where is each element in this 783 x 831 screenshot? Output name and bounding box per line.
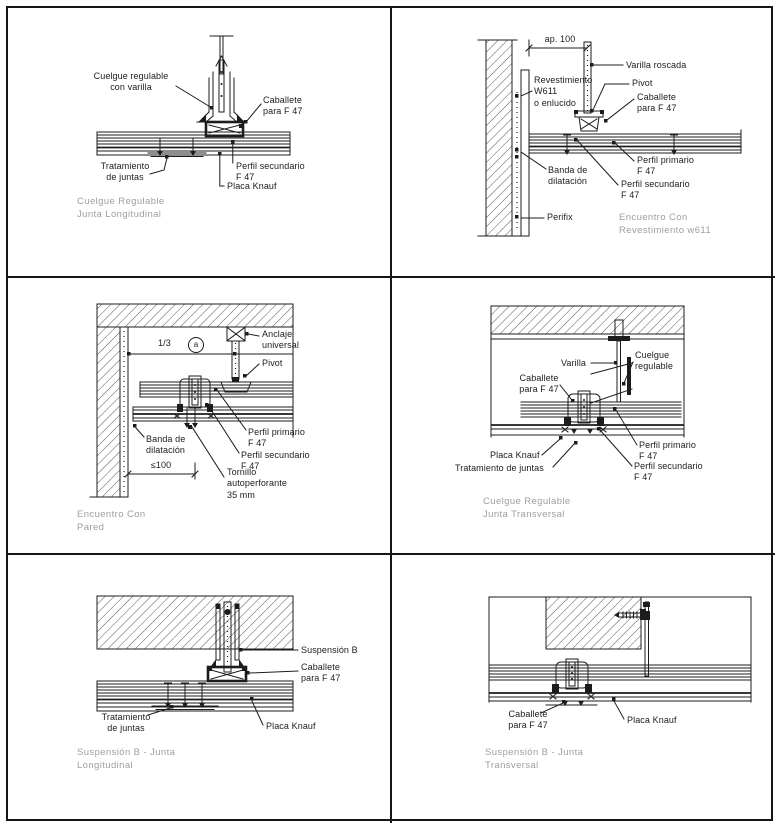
panel-caption: Encuentro Con Revestimiento w611 [619,212,711,238]
anclaje-universal [227,327,245,341]
panel-caption: Encuentro Con Pared [77,509,146,535]
detail-panel-cuelgue-junta-longitudinal: Cuelgue regulable con varilla Caballete … [0,0,391,277]
plate-screws [564,135,678,155]
detail-drawing [0,277,391,554]
label-suspension-b: Suspensión B [301,645,358,656]
label-varilla: Varilla [561,358,586,369]
detail-drawing [391,0,783,277]
label-banda-dilatacion: Banda de dilatación [146,434,185,457]
label-cuelgue-regulable: Cuelgue regulable con varilla [86,71,176,94]
panel-caption: Cuelgue Regulable Junta Transversal [483,496,571,522]
label-caballete: Caballete para F 47 [503,709,553,732]
caballete-bracket [206,122,243,136]
label-tratamiento-juntas: Tratamiento de juntas [96,712,156,735]
leader-lines [541,697,624,719]
panel-caption: Suspensión B - Junta Transversal [485,747,583,773]
plate-lines [491,425,684,435]
label-caballete: Caballete para F 47 [637,92,676,115]
label-perfil-secundario: Perfil secundario F 47 [621,179,690,202]
label-caballete: Caballete para F 47 [515,373,563,396]
label-perfil-secundario: Perfil secundario F 47 [634,461,703,484]
panel-caption: Suspensión B - Junta Longitudinal [77,747,175,773]
label-cuelgue-regulable: Cuelgue regulable [635,350,673,373]
detail-panel-encuentro-pared: 1/3 a Anclaje universal Pivot Banda de d… [0,277,391,554]
label-tratamiento-juntas: Tratamiento de juntas [455,463,544,474]
label-pivot: Pivot [632,78,653,89]
label-placa-knauf: Placa Knauf [266,721,316,732]
detail-drawing [0,554,391,831]
label-perfil-primario: Perfil primario F 47 [637,155,694,178]
label-anclaje-universal: Anclaje universal [262,329,299,352]
label-revestimiento-w611: Revestimiento W611 o enlucido [534,75,592,109]
label-varilla-roscada: Varilla roscada [626,60,686,71]
cad-detail-sheet: Cuelgue regulable con varilla Caballete … [0,0,783,831]
label-caballete: Caballete para F 47 [263,95,302,118]
label-dim-ratio: 1/3 [158,338,171,349]
caballete-cross-section [546,659,597,706]
label-perifix: Perifix [547,212,573,223]
profile-lines [489,665,751,701]
hanger-rod [197,36,246,122]
wall-hatch [478,40,522,236]
label-placa-knauf: Placa Knauf [227,181,277,192]
profile-lines [521,402,681,417]
pivot-rod [221,341,251,392]
detail-drawing [391,277,783,554]
label-banda-dilatacion: Banda de dilatación [548,165,587,188]
label-placa-knauf: Placa Knauf [627,715,677,726]
label-dim-max: ≤100 [136,460,186,471]
label-tratamiento-juntas: Tratamiento de juntas [94,161,156,184]
caballete-bracket [208,667,246,681]
detail-panel-suspension-b-transversal: Caballete para F 47 Placa Knauf Suspensi… [391,554,782,831]
detail-drawing [0,0,391,277]
panel-caption: Cuelgue Regulable Junta Longitudinal [77,196,165,222]
label-placa-knauf: Placa Knauf [490,450,540,461]
wall-hatch [90,304,128,497]
label-perfil-primario: Perfil primario F 47 [248,427,305,450]
cuelgue-regulable-clip [591,357,632,403]
detail-panel-cuelgue-junta-transversal: Varilla Cuelgue regulable Caballete para… [391,277,782,554]
suspension-b [211,602,244,672]
label-caballete: Caballete para F 47 [301,662,340,685]
detail-drawing [391,554,783,831]
label-dim-ap100: ap. 100 [533,34,587,45]
profile-lines [529,130,741,153]
label-perfil-primario: Perfil primario F 47 [639,440,696,463]
slab-hatch [97,596,293,649]
label-pivot: Pivot [262,358,283,369]
label-tornillo-autoperforante: Tornillo autoperforante 35 mm [227,467,287,501]
detail-panel-suspension-b-longitudinal: Suspensión B Caballete para F 47 Tratami… [0,554,391,831]
detail-panel-encuentro-revestimiento: ap. 100 Varilla roscada Revestimiento W6… [391,0,782,277]
dimension-third [127,352,293,356]
dim-ratio-reference-circle: a [188,337,204,353]
